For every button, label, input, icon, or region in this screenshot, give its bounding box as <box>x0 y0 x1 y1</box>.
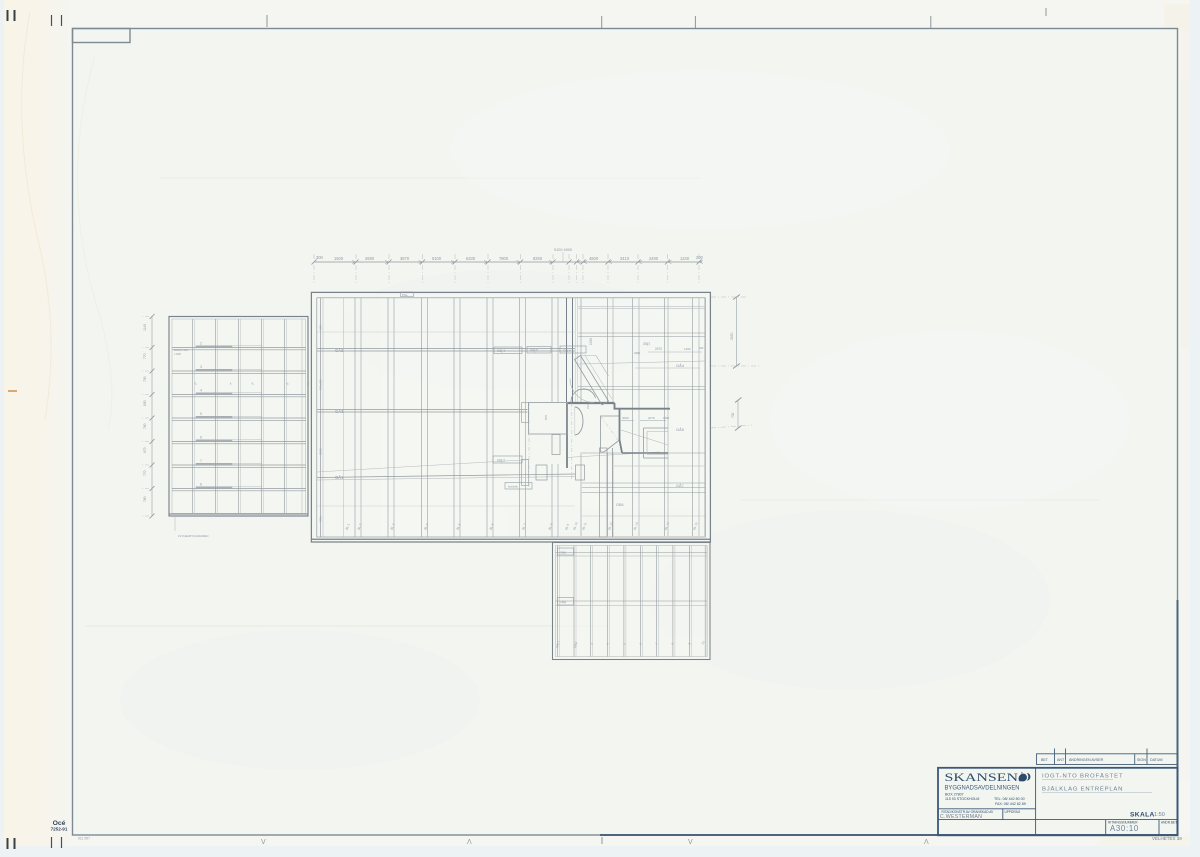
svg-text:Λ: Λ <box>924 839 929 846</box>
svg-text:5100: 5100 <box>432 256 442 261</box>
svg-text:3060: 3060 <box>622 416 629 420</box>
svg-text:7: 7 <box>200 459 202 463</box>
svg-text:TEL: 08/ 442 80 00: TEL: 08/ 442 80 00 <box>994 797 1025 801</box>
svg-text:Λ: Λ <box>467 839 472 846</box>
svg-text:2140: 2140 <box>586 402 590 409</box>
svg-text:700: 700 <box>731 412 735 418</box>
svg-text:ÄNDRINGEN AVSER: ÄNDRINGEN AVSER <box>1069 758 1104 762</box>
svg-text:2470: 2470 <box>655 347 662 351</box>
svg-text:300: 300 <box>316 255 324 260</box>
svg-text:1860: 1860 <box>663 416 670 420</box>
svg-text:V: V <box>261 839 266 846</box>
svg-text:GÅ1: GÅ1 <box>335 475 344 480</box>
svg-text:GÅ4: GÅ4 <box>676 363 685 368</box>
svg-text:GBj6: GBj6 <box>634 351 641 355</box>
svg-text:IOGT-NTO: IOGT-NTO <box>1042 774 1078 780</box>
svg-text:BOX 27807: BOX 27807 <box>945 792 964 796</box>
svg-text:FLYGELBYGGNADEN: FLYGELBYGGNADEN <box>178 534 208 538</box>
svg-text:2690: 2690 <box>365 256 375 261</box>
svg-text:SIGN: SIGN <box>1137 758 1146 762</box>
svg-text:GB4: GB4 <box>616 503 624 507</box>
svg-text:2650: 2650 <box>730 332 734 340</box>
svg-text:1500: 1500 <box>334 256 344 261</box>
svg-text:SKANSEN: SKANSEN <box>945 770 1019 784</box>
svg-text:FAX: 08/ 442 82 89: FAX: 08/ 442 82 89 <box>995 802 1026 806</box>
svg-text:kantbalk: kantbalk <box>508 485 518 489</box>
svg-text:2890: 2890 <box>319 448 323 455</box>
svg-text:GBj 6: GBj 6 <box>563 349 571 353</box>
svg-text:540: 540 <box>319 325 323 330</box>
svg-text:770: 770 <box>143 353 147 359</box>
svg-text:540c600: 540c600 <box>319 379 323 390</box>
svg-text:GBj 2: GBj 2 <box>497 459 505 463</box>
svg-text:GBj1: GBj1 <box>560 551 567 555</box>
svg-text:2: 2 <box>200 342 202 346</box>
svg-text:BYGGNADSAVDELNINGEN: BYGGNADSAVDELNINGEN <box>945 784 1020 791</box>
svg-text:200: 200 <box>696 255 704 260</box>
svg-text:6: 6 <box>200 436 202 440</box>
svg-text:6330: 6330 <box>466 256 476 261</box>
svg-text:1340: 1340 <box>680 256 690 261</box>
svg-text:390: 390 <box>699 346 704 350</box>
svg-text:7252-91: 7252-91 <box>51 827 68 832</box>
svg-text:GBj 4: GBj 4 <box>497 349 505 353</box>
svg-text:8: 8 <box>200 483 202 487</box>
svg-text:1930: 1930 <box>589 338 593 345</box>
svg-text:UPPDRAG: UPPDRAG <box>1005 810 1021 814</box>
svg-text:1:50: 1:50 <box>1154 812 1165 818</box>
svg-text:870: 870 <box>544 415 548 420</box>
svg-text:GÅ2: GÅ2 <box>335 348 344 353</box>
svg-text:GÅ7: GÅ7 <box>676 483 684 488</box>
svg-text:3: 3 <box>200 365 202 369</box>
svg-text:2070: 2070 <box>648 416 655 420</box>
svg-text:911 957: 911 957 <box>78 837 90 841</box>
svg-text:GÅ3: GÅ3 <box>335 409 344 414</box>
svg-text:760: 760 <box>143 423 147 429</box>
svg-text:DATUM: DATUM <box>1150 758 1163 762</box>
svg-text:GÅ5: GÅ5 <box>676 427 685 432</box>
svg-text:800: 800 <box>143 400 147 406</box>
svg-text:BROFÄSTET: BROFÄSTET <box>1080 773 1123 780</box>
svg-text:3410: 3410 <box>620 256 630 261</box>
svg-text:9100 4900: 9100 4900 <box>554 248 572 252</box>
svg-text:770: 770 <box>143 470 147 476</box>
svg-text:2490: 2490 <box>649 256 659 261</box>
svg-text:PGL: PGL <box>402 293 408 297</box>
svg-text:700: 700 <box>143 376 147 382</box>
svg-text:GBj2: GBj2 <box>560 600 567 604</box>
svg-text:1140: 1140 <box>143 324 147 331</box>
svg-text:4: 4 <box>200 389 202 393</box>
svg-text:540c: 540c <box>319 515 323 522</box>
svg-text:7800: 7800 <box>499 256 509 261</box>
svg-text:BET: BET <box>1041 758 1049 762</box>
svg-text:SKALA: SKALA <box>1130 811 1155 818</box>
svg-text:5: 5 <box>200 412 202 416</box>
svg-text:ANT: ANT <box>1057 758 1065 762</box>
svg-text:3870: 3870 <box>400 256 410 261</box>
svg-text:870: 870 <box>143 447 147 453</box>
svg-text:1160: 1160 <box>684 347 691 351</box>
svg-text:GBj7: GBj7 <box>643 342 650 346</box>
svg-text:8250: 8250 <box>533 256 543 261</box>
svg-text:760: 760 <box>143 496 147 502</box>
svg-text:115 93 STOCKHOLM: 115 93 STOCKHOLM <box>945 797 979 801</box>
svg-text:c 600: c 600 <box>174 352 181 356</box>
svg-text:BJÄLKLAG ENTRÉPLAN: BJÄLKLAG ENTRÉPLAN <box>1042 786 1123 793</box>
svg-text:A30:10: A30:10 <box>1110 824 1139 833</box>
svg-text:C.WESTERMAN: C.WESTERMAN <box>940 814 982 820</box>
svg-text:GBj 5: GBj 5 <box>530 349 538 353</box>
svg-text:V: V <box>688 839 693 846</box>
svg-text:4600: 4600 <box>589 256 599 261</box>
svg-text:ANDR.BET: ANDR.BET <box>1161 820 1177 824</box>
svg-text:VELHETEX 39: VELHETEX 39 <box>1152 836 1182 841</box>
